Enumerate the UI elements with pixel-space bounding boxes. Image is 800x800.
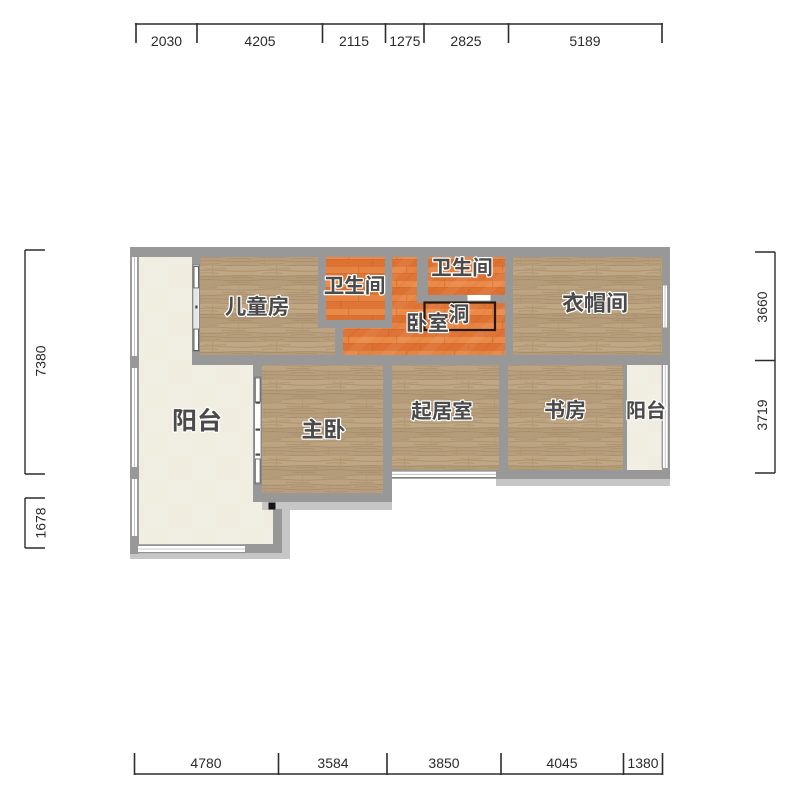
svg-text:3660: 3660: [754, 291, 770, 322]
svg-text:2115: 2115: [339, 33, 369, 49]
svg-text:1678: 1678: [33, 507, 49, 538]
svg-text:2030: 2030: [151, 33, 182, 49]
svg-text:2825: 2825: [450, 33, 481, 49]
svg-text:3719: 3719: [754, 399, 770, 430]
svg-text:1275: 1275: [389, 33, 420, 49]
svg-text:4780: 4780: [190, 755, 221, 771]
svg-text:1380: 1380: [627, 755, 658, 771]
svg-text:5189: 5189: [569, 33, 600, 49]
svg-text:4205: 4205: [244, 33, 275, 49]
svg-text:3584: 3584: [317, 755, 348, 771]
svg-text:7380: 7380: [33, 345, 49, 376]
svg-text:3850: 3850: [428, 755, 459, 771]
svg-text:4045: 4045: [546, 755, 577, 771]
